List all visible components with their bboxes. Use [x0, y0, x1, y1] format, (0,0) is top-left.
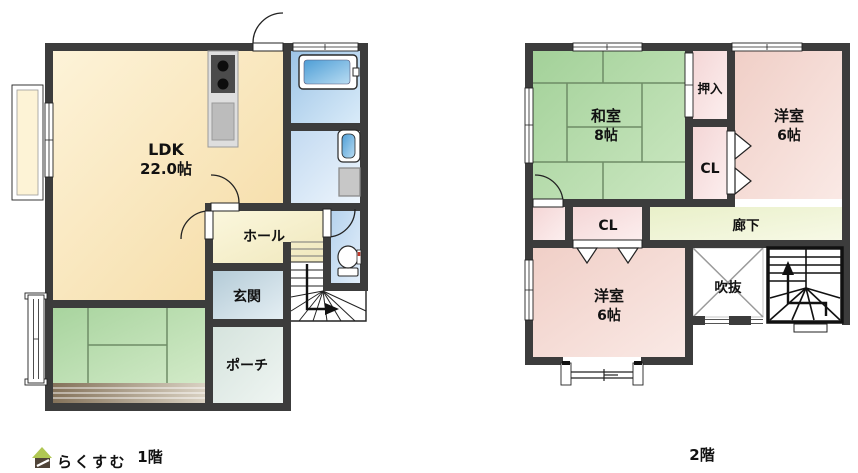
washing-machine-icon	[339, 168, 360, 196]
logo-text: らくすむ	[57, 453, 127, 471]
youshitsu-sw-size-label: 6帖	[597, 307, 621, 324]
oshiire-sliding-door	[685, 53, 693, 117]
washbasin-icon	[338, 130, 360, 162]
cl-sw-label: CL	[598, 218, 617, 234]
youshitsu-ne-label: 洋室	[774, 107, 804, 125]
entry-door-top	[253, 13, 283, 51]
floor1-caption: 1階	[137, 448, 162, 466]
genkan-label: 玄関	[233, 288, 261, 305]
stairs-area-1f-lower	[331, 291, 366, 321]
washitsu-label: 和室	[591, 107, 621, 125]
youshitsu-sw-left-window	[525, 260, 533, 320]
sink-icon	[212, 103, 234, 140]
youshitsu-ne-top-window	[732, 43, 802, 51]
hall-label: ホール	[243, 229, 285, 245]
logo-house-icon	[32, 447, 52, 468]
room-washitsu	[533, 51, 685, 199]
porch-label: ポーチ	[226, 357, 268, 374]
toilet-icon	[338, 246, 361, 276]
youshitsu-ne-size-label: 6帖	[777, 127, 801, 144]
corridor-label: 廊下	[733, 217, 761, 234]
kitchen-counter-icon	[208, 51, 238, 147]
floor2-plan: 和室 8帖 押入 洋室 6帖 CL CL 廊下 洋室 6帖 吹抜	[525, 43, 850, 385]
tatami-window	[25, 293, 47, 385]
washitsu-size-label: 8帖	[594, 127, 618, 144]
ldk-label: LDK	[148, 140, 184, 159]
floor1-plan: LDK 22.0帖 ホール 玄関 ポーチ	[12, 13, 368, 411]
rakusumu-logo: らくすむ	[32, 447, 127, 471]
room-small-closet	[533, 207, 565, 240]
stairs-2f	[768, 248, 842, 332]
floorplan-svg: LDK 22.0帖 ホール 玄関 ポーチ	[0, 0, 858, 473]
stairs-landing	[794, 324, 827, 332]
bathtub-icon	[299, 55, 359, 89]
balcony-window	[561, 357, 643, 385]
cl-ne-label: CL	[700, 161, 719, 177]
washitsu-left-window	[525, 88, 533, 163]
floor2-caption: 2階	[689, 446, 714, 464]
fukinuke-label: 吹抜	[715, 279, 743, 296]
youshitsu-sw-label: 洋室	[594, 287, 624, 305]
bath-window	[293, 43, 358, 51]
oshiire-label: 押入	[697, 81, 723, 96]
floorplan-image: LDK 22.0帖 ホール 玄関 ポーチ	[0, 0, 858, 473]
ldk-size-label: 22.0帖	[140, 160, 192, 178]
room-youshitsu-ne	[735, 51, 842, 199]
washitsu-top-window	[573, 43, 642, 51]
